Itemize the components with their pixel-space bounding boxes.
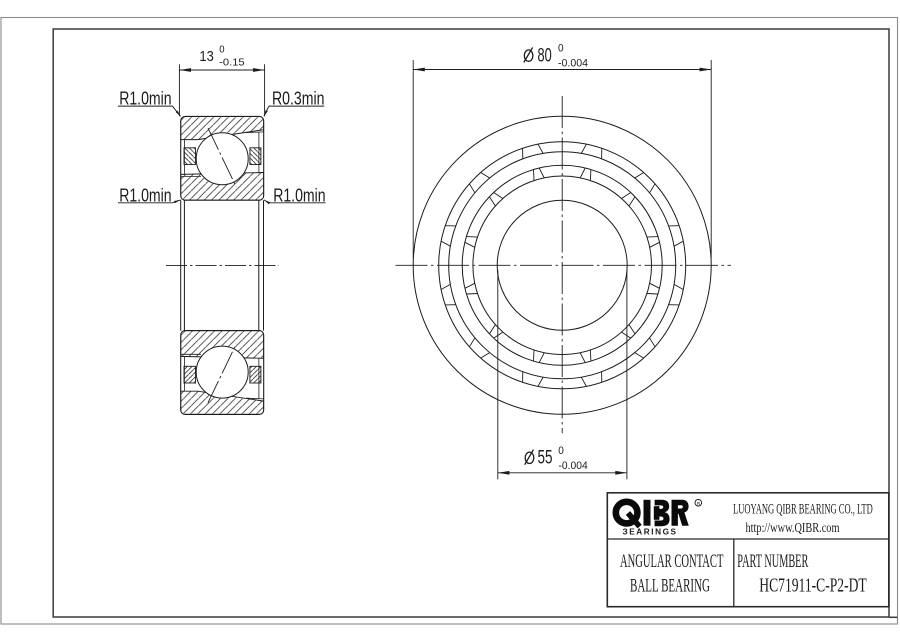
svg-text:-0.004: -0.004 <box>558 58 588 70</box>
svg-text:55: 55 <box>538 447 553 469</box>
svg-text:0: 0 <box>219 44 225 55</box>
svg-text:80: 80 <box>538 45 552 67</box>
svg-text:0: 0 <box>558 43 564 55</box>
svg-text:LUOYANG QIBR BEARING CO., LTD: LUOYANG QIBR BEARING CO., LTD <box>733 501 873 517</box>
svg-text:BALL BEARING: BALL BEARING <box>630 577 710 597</box>
svg-text:-0.004: -0.004 <box>559 460 588 472</box>
svg-text:http://www.QIBR.com: http://www.QIBR.com <box>746 521 840 536</box>
svg-text:ANGULAR CONTACT: ANGULAR CONTACT <box>620 552 723 572</box>
svg-text:HC71911-C-P2-DT: HC71911-C-P2-DT <box>759 575 866 597</box>
svg-text:R1.0min: R1.0min <box>119 185 171 205</box>
svg-text:R0.3min: R0.3min <box>272 89 324 109</box>
svg-text:0: 0 <box>558 445 564 457</box>
svg-text:13: 13 <box>199 49 213 65</box>
svg-text:PART NUMBER: PART NUMBER <box>737 552 808 572</box>
svg-text:R1.0min: R1.0min <box>273 185 325 205</box>
svg-text:R: R <box>697 501 701 507</box>
svg-text:-0.15: -0.15 <box>219 58 245 69</box>
svg-text:R1.0min: R1.0min <box>119 89 171 109</box>
svg-text:ЗEARINGS: ЗEARINGS <box>623 528 677 537</box>
